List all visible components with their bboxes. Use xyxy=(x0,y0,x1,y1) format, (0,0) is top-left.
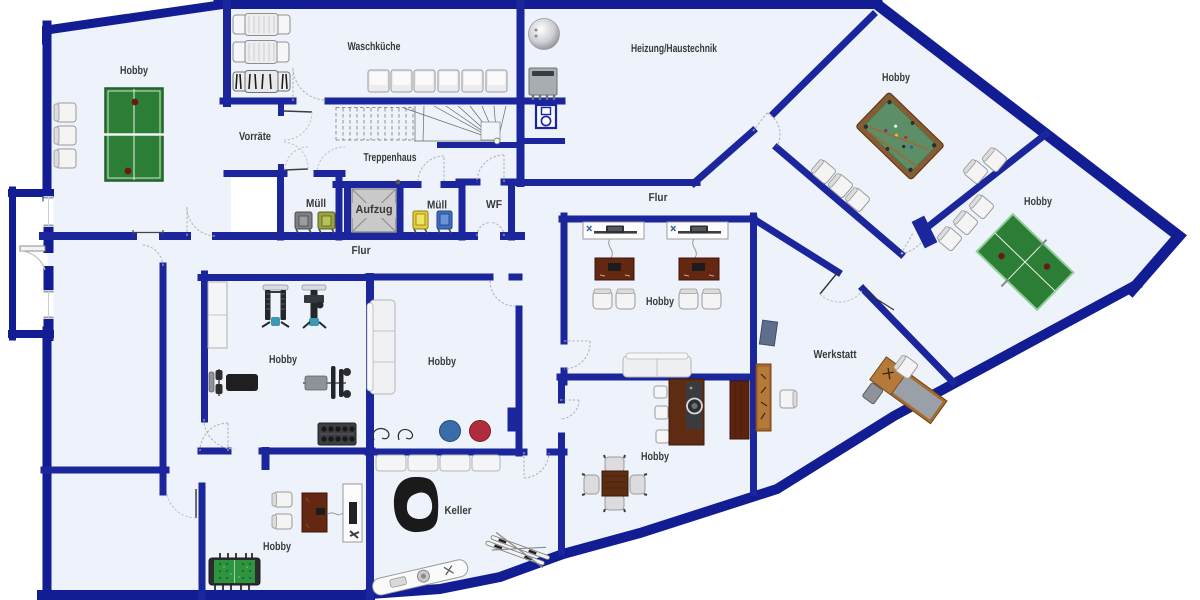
svg-text:Müll: Müll xyxy=(306,198,326,210)
svg-text:Hobby: Hobby xyxy=(646,296,674,308)
svg-text:Flur: Flur xyxy=(649,192,668,204)
svg-text:Waschküche: Waschküche xyxy=(348,41,401,53)
svg-text:Hobby: Hobby xyxy=(1024,196,1052,208)
svg-text:Werkstatt: Werkstatt xyxy=(814,349,857,361)
svg-text:WF: WF xyxy=(486,199,502,211)
svg-text:Hobby: Hobby xyxy=(269,354,297,366)
svg-text:Vorräte: Vorräte xyxy=(239,131,271,143)
svg-text:Hobby: Hobby xyxy=(428,356,456,368)
svg-text:Müll: Müll xyxy=(427,200,447,212)
svg-text:Flur: Flur xyxy=(352,245,371,257)
svg-text:Heizung/Haustechnik: Heizung/Haustechnik xyxy=(631,43,717,55)
svg-text:Hobby: Hobby xyxy=(641,451,669,463)
svg-text:Keller: Keller xyxy=(445,505,472,517)
svg-text:Hobby: Hobby xyxy=(882,72,910,84)
svg-text:Treppenhaus: Treppenhaus xyxy=(364,152,417,164)
svg-text:Aufzug: Aufzug xyxy=(356,204,393,216)
svg-text:Hobby: Hobby xyxy=(120,65,148,77)
svg-text:Hobby: Hobby xyxy=(263,541,291,553)
